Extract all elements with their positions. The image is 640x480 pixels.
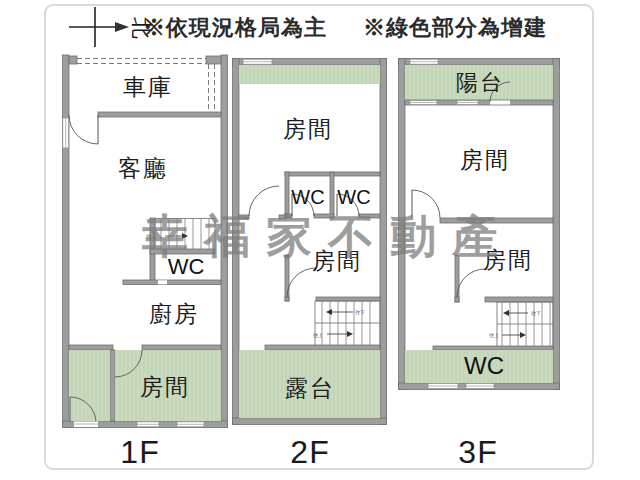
floor-label-2f: 2F: [290, 434, 329, 471]
room-label-mid-room: 房間: [483, 245, 533, 276]
stair-note-down: 往下: [531, 310, 541, 316]
floor-label-3f: 3F: [458, 434, 497, 471]
room-label-living: 客廳: [118, 153, 168, 184]
note-green-addition: ※綠色部分為增建: [363, 13, 547, 43]
stair-note-up: 往上: [146, 233, 156, 239]
room-label-garage: 車庫: [123, 72, 173, 103]
floor-plan-1f: 車庫 客廳 往上 WC 廚房 房間: [62, 53, 228, 430]
stair-note-up: 往上: [313, 332, 323, 338]
stair-note-down: 往下: [355, 309, 365, 315]
room-label-wc: WC: [168, 254, 205, 280]
room-label-mid-room: 房間: [312, 246, 362, 277]
room-label-wc-left: WC: [291, 186, 324, 209]
floor-plan-2f: 房間 WC WC 房間 往下 往上 露台: [232, 58, 387, 425]
note-current-layout: ※依現況格局為主: [143, 13, 327, 43]
room-label-balcony: 陽台: [456, 68, 504, 98]
room-label-wc-right: WC: [337, 186, 370, 209]
room-label-front-room: 房間: [460, 145, 510, 176]
floor-label-1f: 1F: [120, 434, 159, 471]
room-label-front-room: 房間: [283, 114, 333, 145]
floorplan-sheet: 北 ※依現況格局為主 ※綠色部分為增建 幸福家不動產: [0, 0, 640, 480]
floor-plan-3f: 陽台 房間 房間 往下 往上 WC: [398, 58, 560, 390]
stair-note-up: 往上: [489, 332, 499, 338]
room-label-wc: WC: [464, 352, 504, 380]
room-label-bedroom: 房間: [140, 372, 190, 403]
room-label-kitchen: 廚房: [149, 299, 199, 330]
floor-plan-3f-drawing: [398, 58, 560, 390]
room-label-terrace: 露台: [285, 373, 335, 404]
